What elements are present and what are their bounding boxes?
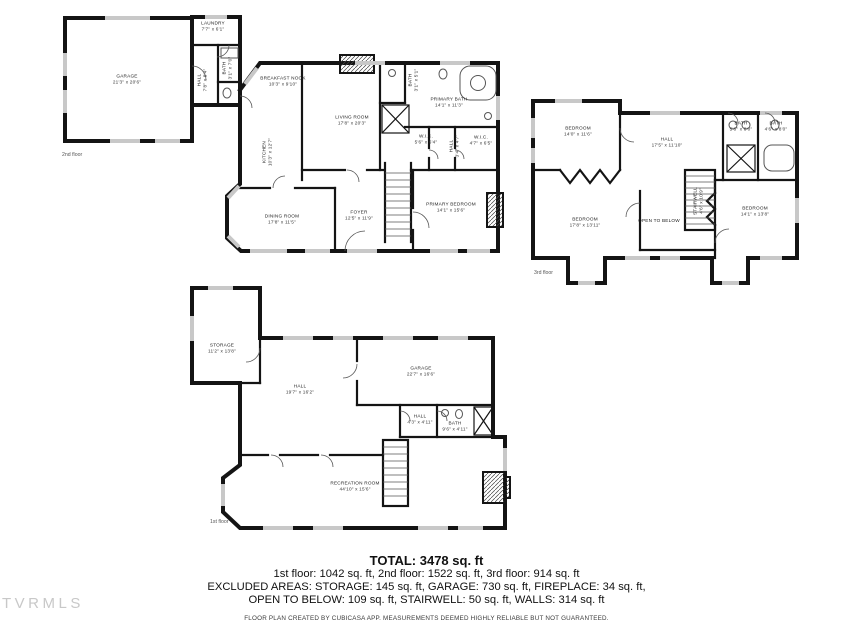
area-summary: TOTAL: 3478 sq. ft 1st floor: 1042 sq. f… bbox=[0, 553, 853, 622]
excluded-areas-line1: EXCLUDED AREAS: STORAGE: 145 sq. ft, GAR… bbox=[0, 581, 853, 594]
excluded-areas-line2: OPEN TO BELOW: 109 sq. ft, STAIRWELL: 50… bbox=[0, 594, 853, 607]
total-area: TOTAL: 3478 sq. ft bbox=[0, 553, 853, 568]
floorplan-page: GARAGE21'3" x 20'6"LAUNDRY7'7" x 6'1"HAL… bbox=[0, 0, 853, 640]
first-floor-caption: 1st floor bbox=[210, 519, 228, 525]
second-floor-plan bbox=[55, 8, 505, 253]
first-floor-plan bbox=[183, 286, 513, 531]
third-floor-plan bbox=[530, 93, 805, 288]
floor-areas: 1st floor: 1042 sq. ft, 2nd floor: 1522 … bbox=[0, 568, 853, 581]
third-floor-caption: 3rd floor bbox=[534, 270, 553, 276]
disclaimer: FLOOR PLAN CREATED BY CUBICASA APP. MEAS… bbox=[0, 615, 853, 622]
second-floor-caption: 2nd floor bbox=[62, 152, 82, 158]
mls-watermark: TVRMLS bbox=[2, 595, 84, 612]
